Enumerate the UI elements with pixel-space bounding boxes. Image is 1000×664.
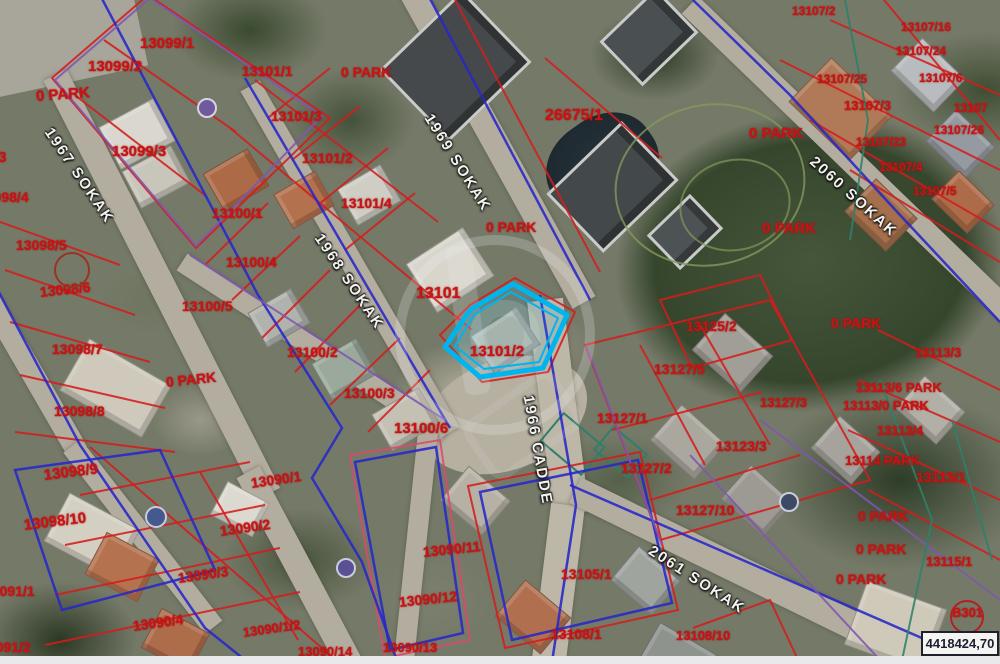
- parcel-label: 13113/4: [877, 424, 923, 437]
- parcel-label: 13127/10: [676, 503, 734, 517]
- manhole-icon: [145, 506, 167, 528]
- parcel-label: 13099/1: [140, 36, 194, 51]
- parcel-label: 13100/6: [394, 421, 448, 436]
- parcel-label: 13107: [954, 102, 987, 114]
- parcel-label: 13101/2: [302, 151, 353, 165]
- parcel-label: 13099/3: [112, 144, 166, 159]
- coordinate-readout: 4418424,70: [921, 631, 999, 656]
- parcel-label: 13114 PARK: [845, 454, 920, 467]
- parcel-label: 13100/4: [226, 255, 277, 269]
- parcel-label: 13100/2: [287, 345, 338, 359]
- parcel-label: 0 PARK: [486, 220, 536, 234]
- benchmark-icon: [54, 252, 90, 288]
- parcel-label: 13091/1: [0, 584, 35, 598]
- stamp-icon: [950, 600, 984, 634]
- parcel-label: 13098/8: [54, 404, 105, 418]
- parcel-label: 13098/5: [16, 238, 67, 252]
- parcel-label: 13113/0 PARK: [843, 399, 929, 412]
- parcel-label: 0 PARK: [341, 65, 391, 79]
- parcel-label: 13113/3: [915, 346, 961, 359]
- parcel-label: 13107/16: [901, 21, 951, 33]
- parcel-label: 13101/1: [242, 64, 293, 78]
- parcel-label: 13101/3: [271, 109, 322, 123]
- parcel-label: 13107/5: [913, 185, 956, 197]
- parcel-label: 0 PARK: [858, 509, 908, 523]
- parcel-label: 13101/2: [470, 344, 524, 359]
- parcel-label: 13107/6: [919, 72, 962, 84]
- manhole-icon: [779, 492, 799, 512]
- parcel-label: 13098/4: [0, 190, 29, 204]
- parcel-label: 13100/1: [212, 206, 263, 220]
- highlighted-parcel-13101-2[interactable]: [445, 284, 567, 377]
- parcel-label: 13115/1: [926, 555, 972, 568]
- parcel-label: 13125/2: [686, 319, 737, 333]
- parcel-label: 0 PARK: [749, 126, 803, 141]
- parcel-label: 0 PARK: [35, 85, 90, 104]
- manhole-icon: [336, 558, 356, 578]
- parcel-label: 13101/4: [341, 196, 392, 210]
- coordinate-value: 4418424,70: [926, 636, 995, 651]
- parcel-label: 13108/10: [676, 629, 730, 642]
- parcel-label: 13127/3: [760, 396, 807, 409]
- parcel-label: 13127/5: [654, 362, 705, 376]
- parcel-label: 13127/1: [597, 411, 648, 425]
- parcel-label: 13099/2: [88, 59, 142, 74]
- parcel-label: 13098/7: [52, 342, 103, 356]
- parcel-label: 0 PARK: [836, 572, 886, 586]
- parcel-label: 13101: [416, 286, 461, 302]
- parcel-label: 13107/3: [844, 99, 891, 112]
- parcel-label: 0 PARK: [831, 316, 881, 330]
- parcel-label: 13105/1: [561, 567, 612, 581]
- parcel-label: 13091/2: [0, 640, 31, 654]
- parcel-label: 13107/24: [896, 45, 946, 57]
- map-bottom-edge: [0, 656, 1000, 664]
- parcel-label: 13100/5: [182, 299, 233, 313]
- satellite-map[interactable]: 4418424,70 13099/113099/20 PARK13099/3/3…: [0, 0, 1000, 664]
- parcel-label: 13127/2: [621, 461, 672, 475]
- parcel-label: 26675/1: [545, 108, 603, 124]
- parcel-label: 13107/4: [879, 161, 922, 173]
- road-sign-icon: [197, 98, 217, 118]
- parcel-label: 13108/1: [551, 627, 602, 641]
- parcel-label: 0 PARK: [762, 221, 816, 236]
- parcel-label: 13107/2: [792, 5, 835, 17]
- parcel-label: 13090/13: [383, 641, 437, 654]
- parcel-label: 13107/25: [817, 73, 867, 85]
- parcel-label: 13107/23: [856, 136, 906, 148]
- parcel-label: 13113/6 PARK: [856, 381, 942, 394]
- parcel-label: 13107/26: [934, 124, 984, 136]
- parcel-label: 13123/3: [716, 439, 767, 453]
- parcel-label: 13113/1: [916, 470, 966, 484]
- parcel-label: /3: [0, 150, 7, 165]
- parcel-label: 0 PARK: [856, 542, 906, 556]
- parcel-label: 13100/3: [344, 386, 395, 400]
